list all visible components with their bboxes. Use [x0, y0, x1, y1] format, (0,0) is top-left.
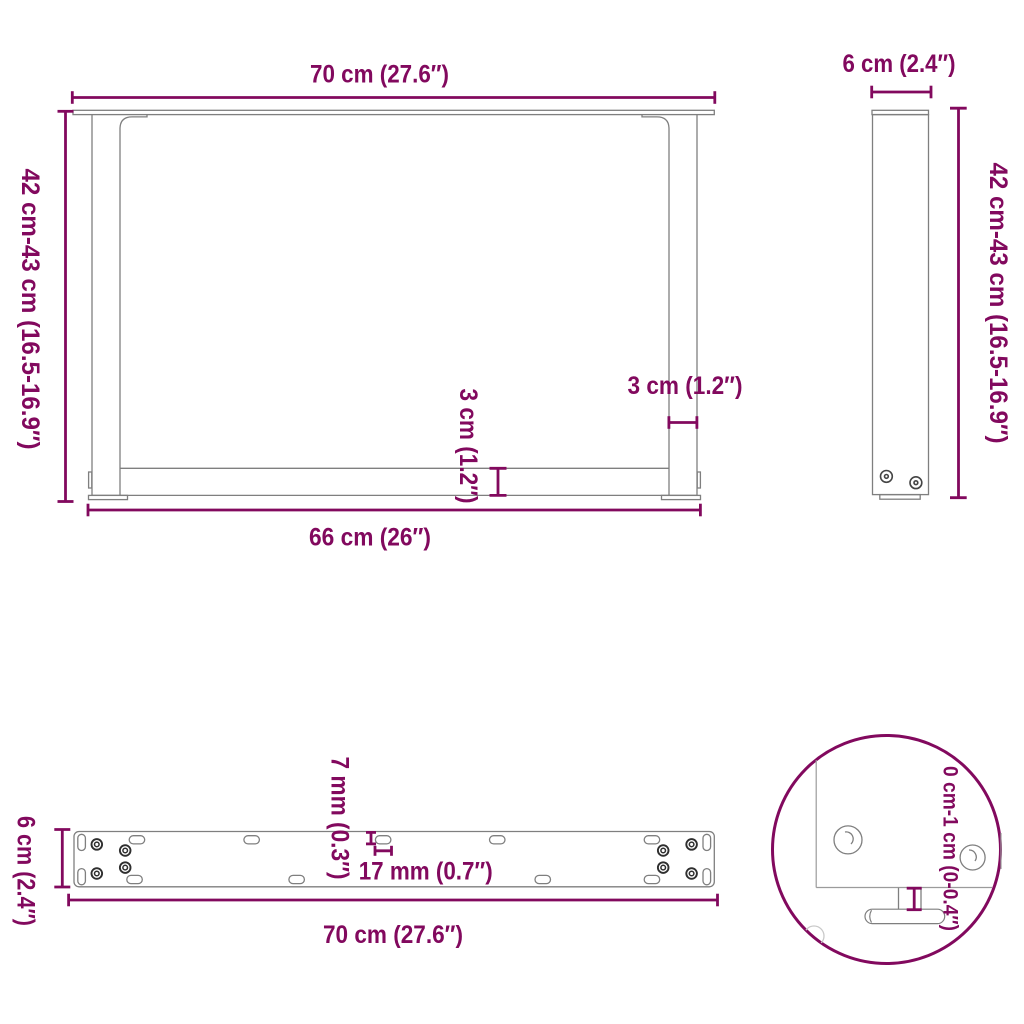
svg-text:70 cm (27.6″): 70 cm (27.6″)	[323, 921, 463, 949]
svg-text:6 cm (2.4″): 6 cm (2.4″)	[843, 50, 956, 78]
svg-text:42 cm-43 cm (16.5-16.9″): 42 cm-43 cm (16.5-16.9″)	[16, 169, 44, 450]
svg-text:42 cm-43 cm (16.5-16.9″): 42 cm-43 cm (16.5-16.9″)	[984, 163, 1012, 444]
svg-text:66 cm (26″): 66 cm (26″)	[309, 524, 431, 552]
svg-text:70 cm (27.6″): 70 cm (27.6″)	[310, 61, 449, 89]
svg-text:3 cm (1.2″): 3 cm (1.2″)	[628, 372, 743, 400]
svg-text:3 cm (1.2″): 3 cm (1.2″)	[454, 389, 482, 504]
svg-text:7 mm (0.3″): 7 mm (0.3″)	[326, 757, 354, 880]
svg-text:0 cm-1 cm (0-0.4″): 0 cm-1 cm (0-0.4″)	[939, 766, 962, 931]
svg-text:17 mm (0.7″): 17 mm (0.7″)	[359, 858, 493, 886]
svg-text:6 cm (2.4″): 6 cm (2.4″)	[12, 816, 40, 926]
